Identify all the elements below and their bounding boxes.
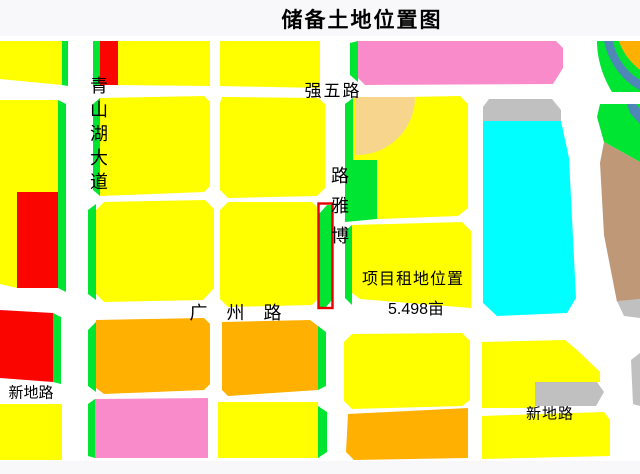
parcel-se1-yellow [344, 333, 470, 409]
parcel-s1-greenbelt [88, 322, 96, 392]
parcel-s2-greenbelt [318, 326, 326, 390]
parcel-n3-pink [358, 41, 563, 85]
parcel-c1-greenbelt [88, 204, 96, 300]
parcel-sw2-yellow [0, 404, 62, 460]
parcel-project-parcel-green [319, 205, 332, 307]
parcel-sw-red-greenbelt [53, 313, 61, 384]
parcel-c2-yellow [220, 202, 319, 307]
parcel-se3-orange [346, 408, 468, 460]
parcel-s3-pink [95, 398, 208, 458]
parcel-nw-block [0, 41, 62, 85]
parcel-s4-greenbelt [318, 406, 327, 458]
map-svg [0, 0, 640, 474]
parcel-c3-greenbelt [345, 225, 352, 305]
parcel-c1-yellow [96, 200, 214, 302]
parcel-w1-red [17, 192, 58, 288]
parcel-w1-greenbelt [58, 100, 66, 292]
parcel-s3-greenbelt [88, 399, 95, 458]
parcel-nw-block-greenbelt [62, 41, 68, 86]
parcel-se2-gray [535, 382, 604, 406]
land-reserve-map-figure: 储备土地位置图 青山湖大道强五路路雅博广州路项目租地位置5.498亩新地路新地路 [0, 0, 640, 474]
parcel-m2-yellow [220, 97, 325, 198]
parcel-m1-yellow [100, 96, 210, 196]
parcel-n1-yellow [118, 41, 210, 86]
parcel-m3-green-notch [345, 160, 377, 222]
parcel-se4-yellow [482, 412, 610, 459]
parcel-lake-cyan [483, 121, 576, 316]
parcel-m1-greenbelt [93, 98, 100, 196]
parcel-n1-greenbelt [93, 41, 100, 87]
parcel-lake-gray-edge [483, 99, 561, 121]
parcel-s1-orange [96, 318, 210, 394]
parcel-n1-red [100, 41, 118, 85]
parcel-sw-red [0, 310, 53, 382]
parcel-m3-greenbelt [345, 98, 353, 164]
parcel-n3-greenbelt [350, 41, 358, 82]
parcel-s4-yellow [218, 402, 318, 458]
parcel-n2-yellow [220, 41, 320, 88]
parcel-s2-orange [222, 320, 318, 396]
parcel-c3-yellow [352, 222, 471, 308]
